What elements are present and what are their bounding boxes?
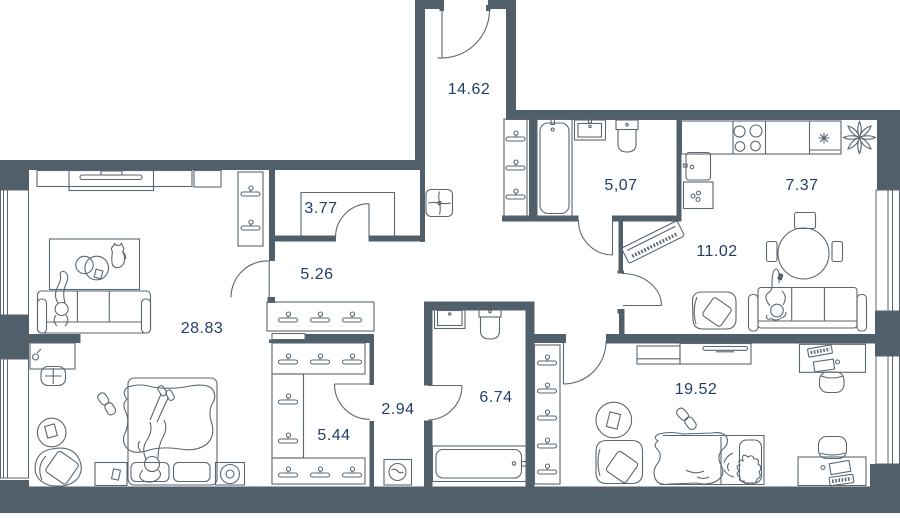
svg-text:7.37: 7.37	[785, 177, 818, 194]
svg-text:2.94: 2.94	[381, 401, 414, 418]
svg-text:6.74: 6.74	[479, 389, 512, 406]
svg-text:5.44: 5.44	[317, 427, 350, 444]
svg-text:19.52: 19.52	[675, 381, 718, 398]
svg-text:5.26: 5.26	[300, 266, 333, 283]
svg-text:11.02: 11.02	[696, 243, 737, 260]
svg-text:28.83: 28.83	[181, 320, 224, 337]
svg-text:5,07: 5,07	[604, 177, 637, 194]
svg-text:14.62: 14.62	[448, 81, 491, 98]
svg-text:3.77: 3.77	[304, 200, 337, 217]
